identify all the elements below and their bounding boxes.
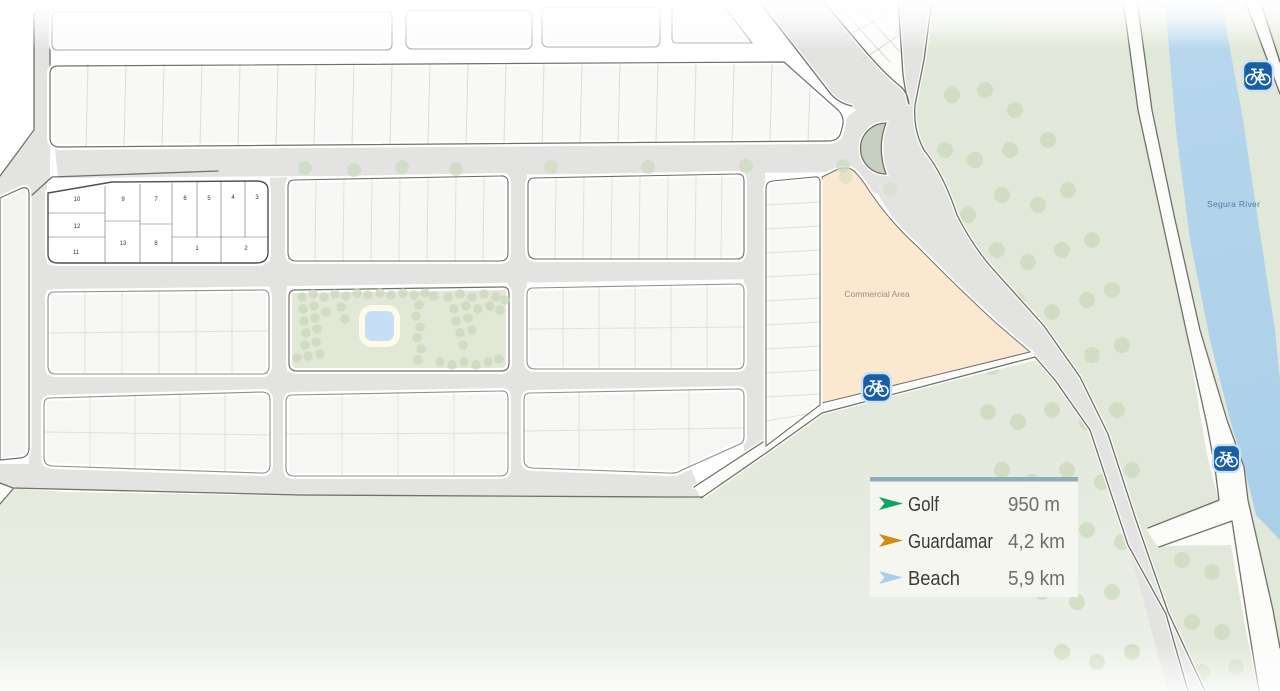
svg-text:5,9 km: 5,9 km	[1008, 568, 1065, 590]
svg-text:4,2 km: 4,2 km	[1008, 531, 1065, 553]
svg-text:950 m: 950 m	[1008, 494, 1060, 516]
svg-text:Segura River: Segura River	[1207, 199, 1260, 209]
svg-text:13: 13	[120, 241, 127, 247]
svg-text:Guardamar: Guardamar	[908, 531, 993, 553]
svg-text:10: 10	[74, 197, 81, 203]
svg-text:Commercial Area: Commercial Area	[844, 289, 909, 299]
svg-text:Beach: Beach	[908, 568, 960, 590]
svg-text:11: 11	[73, 250, 80, 256]
svg-text:12: 12	[74, 224, 81, 230]
svg-text:Golf: Golf	[908, 494, 939, 516]
